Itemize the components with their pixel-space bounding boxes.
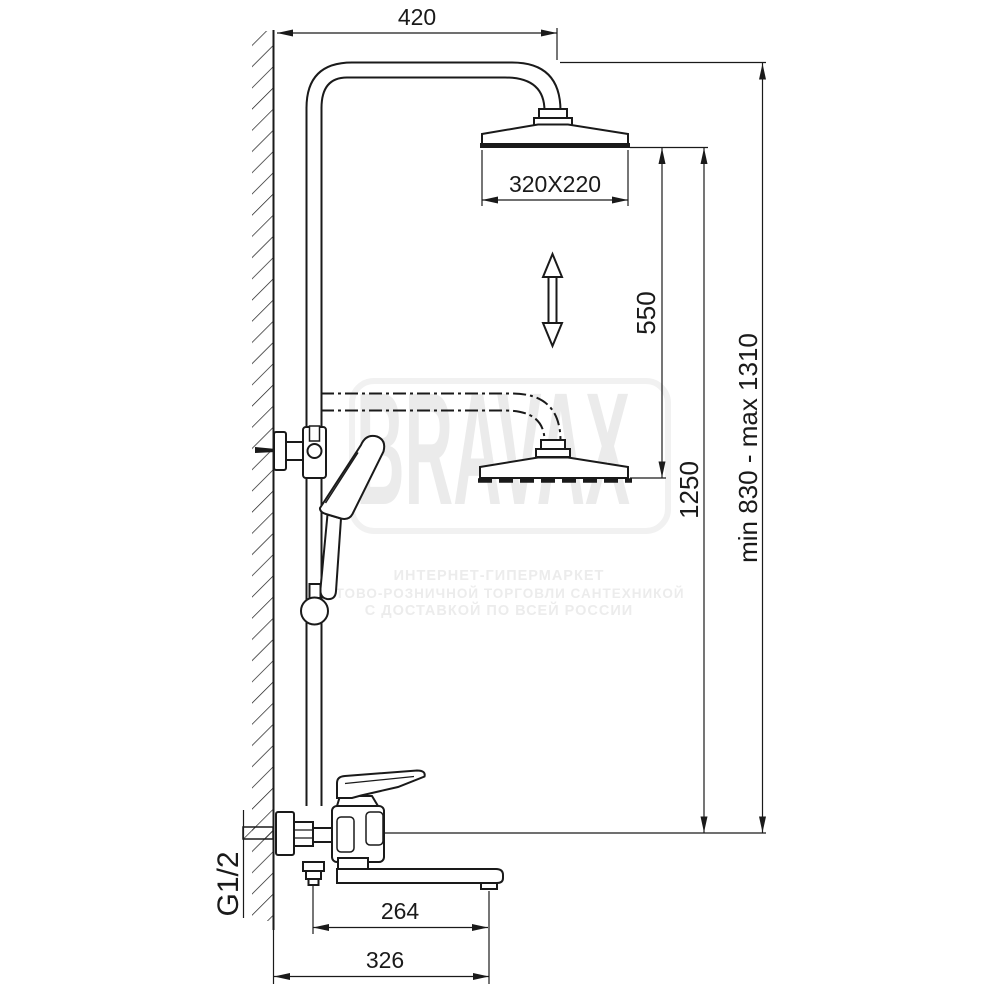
overhead-shower-face [480,143,630,148]
shower-arm [307,63,561,112]
dim-label-550: 550 [631,291,661,334]
arrow-up-head [543,254,562,277]
hose-outlet [309,879,319,885]
shower-arm [322,78,545,112]
dim-label-g12: G1/2 [212,851,245,916]
slider-tab [310,584,321,598]
supply-pipe [313,828,332,842]
holder-slot [310,426,320,441]
arrow-left [274,973,290,980]
watermark-line3: С ДОСТАВКОЙ ПО ВСЕЙ РОССИИ [365,601,633,619]
arrow-right [472,924,488,931]
dim-label-total-height: min 830 - max 1310 [733,333,763,563]
arrow-right [612,197,628,204]
arrow-right [541,30,557,37]
phantom-head-connector [536,449,570,457]
dim-label-420: 420 [398,4,436,30]
drawing-svg: BRAVAX ИНТЕРНЕТ-ГИПЕРМАРКЕТ ОПТОВО-РОЗНИ… [0,0,1000,1000]
arrow-left [277,30,293,37]
head-connector [539,109,567,118]
supply-flange [276,812,294,855]
arrow-up [701,148,708,164]
watermark-brand: BRAVAX [356,359,630,538]
wall-bracket-flange [274,432,286,470]
dim-label-264: 264 [381,898,420,924]
wall-bracket-stem [286,442,303,460]
arrow-down [759,817,766,833]
spout-aerator [481,883,497,889]
watermark: BRAVAX ИНТЕРНЕТ-ГИПЕРМАРКЕТ ОПТОВО-РОЗНИ… [313,359,684,619]
phantom-head-connector [541,440,565,449]
supply-hex-nut [294,822,313,846]
arrow-up [759,64,766,80]
mixer-spout [337,869,503,883]
technical-drawing-canvas: BRAVAX ИНТЕРНЕТ-ГИПЕРМАРКЕТ ОПТОВО-РОЗНИ… [0,0,1000,1000]
overhead-shower-head [482,125,628,145]
arrow-left [482,197,498,204]
wall [252,30,274,930]
dim-label-1250: 1250 [674,461,704,519]
mixer-lever [337,771,425,799]
watermark-line1: ИНТЕРНЕТ-ГИПЕРМАРКЕТ [394,568,605,584]
arrow-right [473,973,489,980]
hose-outlet [303,862,324,871]
mixer-body [332,806,384,862]
arrow-up [659,148,666,164]
arrow-down [659,462,666,478]
holder-screw [308,444,322,458]
slider-knob [301,598,328,625]
arrow-left [313,924,329,931]
watermark-line2: ОПТОВО-РОЗНИЧНОЙ ТОРГОВЛИ САНТЕХНИКОЙ [313,586,684,601]
arrow-down-head [543,323,562,346]
wall-supply-pipe [243,827,273,839]
height-adjust-arrow-icon [543,254,562,346]
arrow-shaft [549,274,557,326]
dim-label-head-size: 320X220 [509,171,601,197]
arrow-down [701,817,708,833]
hose-outlet [306,871,321,879]
dim-label-326: 326 [366,947,404,973]
mixer [243,771,503,890]
wall-hatch [252,31,274,921]
